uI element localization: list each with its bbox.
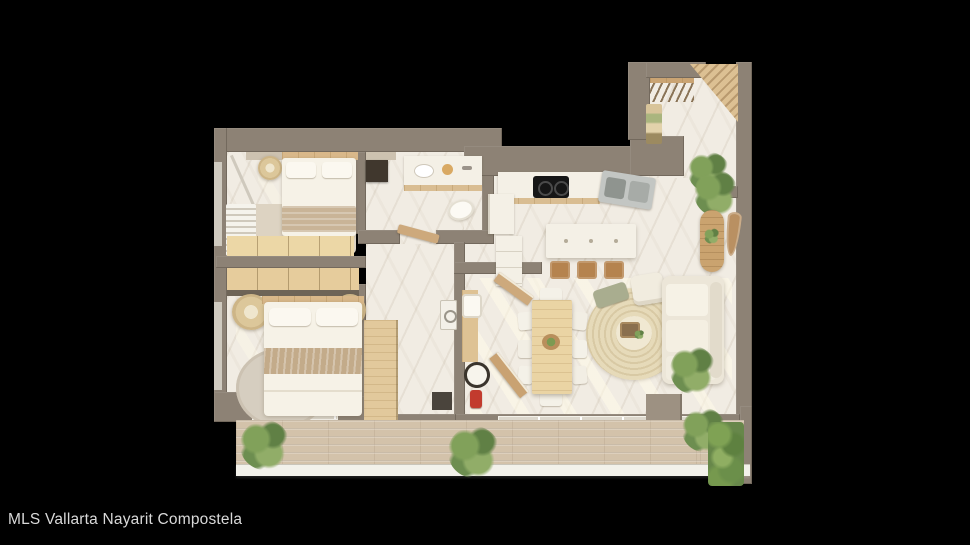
wardrobe-floor-bedroom-1 (227, 236, 354, 256)
bar-stool (577, 261, 597, 279)
wall-below-bathroom1-left (358, 230, 400, 244)
fridge (488, 194, 514, 234)
vanity-wood-edge (404, 185, 482, 191)
red-towel (470, 390, 482, 408)
sink-basin (604, 177, 627, 200)
blanket-bedroom-1 (282, 206, 356, 232)
blanket-master (264, 348, 362, 374)
shower-mirror-panel (366, 160, 388, 182)
island-handle (589, 239, 593, 243)
plant-balcony-middle (448, 426, 500, 478)
faucet (462, 166, 472, 170)
kitchen-counter-edge (502, 198, 600, 204)
sink-bathroom-2 (462, 294, 482, 318)
sheet-fold (264, 390, 362, 392)
cooktop (533, 176, 569, 198)
island-handle (564, 239, 568, 243)
wardrobe-panel-hall-wood (364, 320, 398, 420)
plant-kitchen-corner (694, 170, 738, 216)
island-handle (614, 239, 618, 243)
wall-below-bathroom1-right (436, 230, 494, 244)
screenshot-canvas: { "caption": { "text": "MLS Vallarta Nay… (0, 0, 970, 545)
washer-door (444, 310, 457, 323)
sofa-cushion (666, 284, 708, 316)
pillow (322, 162, 352, 178)
kitchen-island (546, 224, 636, 258)
burner (538, 181, 553, 196)
table-centerpiece (542, 334, 560, 350)
wardrobe-master (227, 268, 359, 292)
wall-top (216, 128, 502, 152)
dark-floor-mat (432, 392, 452, 410)
burner (554, 181, 569, 196)
side-table-bedroom-1 (258, 156, 282, 180)
floor-plan (0, 0, 970, 545)
dining-chair (571, 365, 588, 384)
watermark-text: MLS Vallarta Nayarit Compostela (8, 511, 242, 529)
washer (440, 300, 457, 330)
entry-shelves (646, 104, 662, 144)
wall-bedroom1-master (216, 256, 366, 268)
soap-basket (442, 164, 453, 175)
pillow (286, 162, 316, 178)
window-left-bedroom1 (214, 162, 222, 246)
sink-basin (627, 180, 650, 203)
dining-chair (571, 311, 588, 331)
tray-plant-sprig (634, 330, 645, 339)
dining-chair (540, 392, 562, 406)
coat-rack-shelf (650, 78, 694, 83)
bed-bedroom-1 (282, 158, 356, 236)
bed-master (264, 302, 362, 416)
dining-chair (572, 340, 587, 358)
vanity-bathroom-1 (404, 156, 482, 186)
bar-stool (604, 261, 624, 279)
coat-rack (650, 78, 694, 102)
green-hedge (708, 422, 744, 486)
wall-right (736, 62, 752, 422)
sink-bowl (414, 164, 434, 178)
plant-by-sofa (670, 346, 716, 394)
plant-console (704, 228, 720, 244)
window-left-master (214, 302, 222, 390)
pillow (269, 308, 311, 326)
bar-stool (550, 261, 570, 279)
pillow (316, 308, 358, 326)
plant-balcony-left (240, 420, 290, 470)
dining-chair (518, 340, 533, 358)
armchair (630, 272, 666, 307)
